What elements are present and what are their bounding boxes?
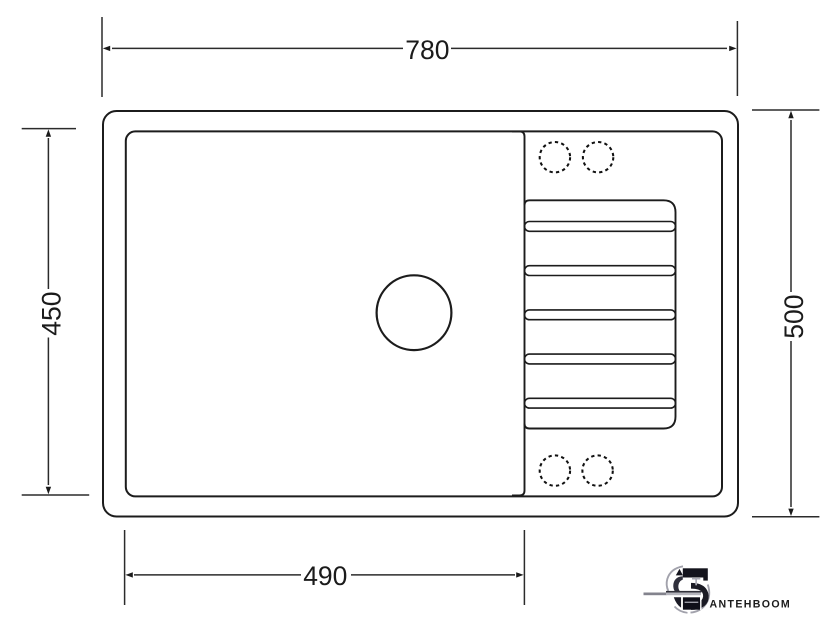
svg-text:500: 500 xyxy=(779,294,809,338)
svg-text:450: 450 xyxy=(37,291,67,335)
svg-text:490: 490 xyxy=(303,561,347,591)
svg-text:ANTEHBOOM: ANTEHBOOM xyxy=(710,598,792,610)
svg-text:780: 780 xyxy=(405,35,449,65)
